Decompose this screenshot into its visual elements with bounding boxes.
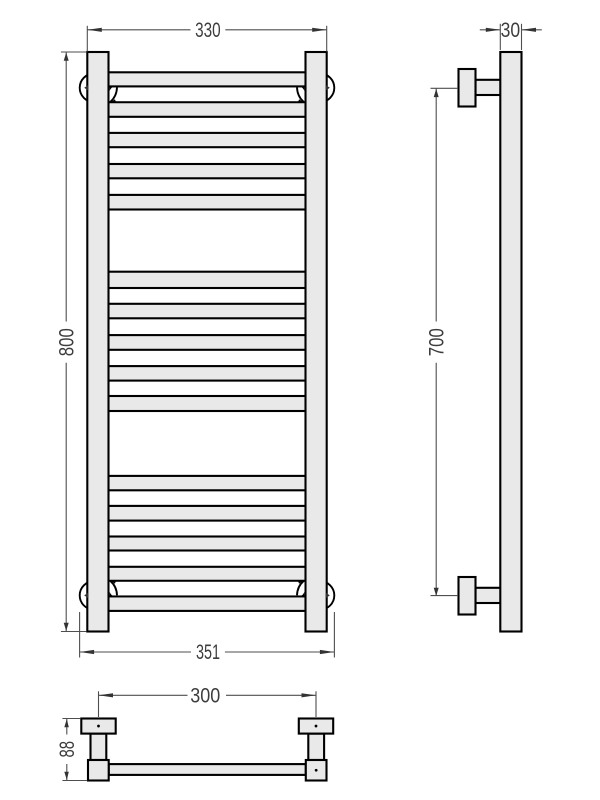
svg-text:351: 351	[196, 641, 220, 664]
svg-text:800: 800	[55, 328, 78, 356]
svg-text:30: 30	[501, 19, 521, 42]
svg-text:700: 700	[425, 328, 448, 356]
svg-text:330: 330	[195, 19, 221, 42]
svg-text:88: 88	[56, 741, 79, 758]
svg-text:300: 300	[190, 685, 220, 708]
